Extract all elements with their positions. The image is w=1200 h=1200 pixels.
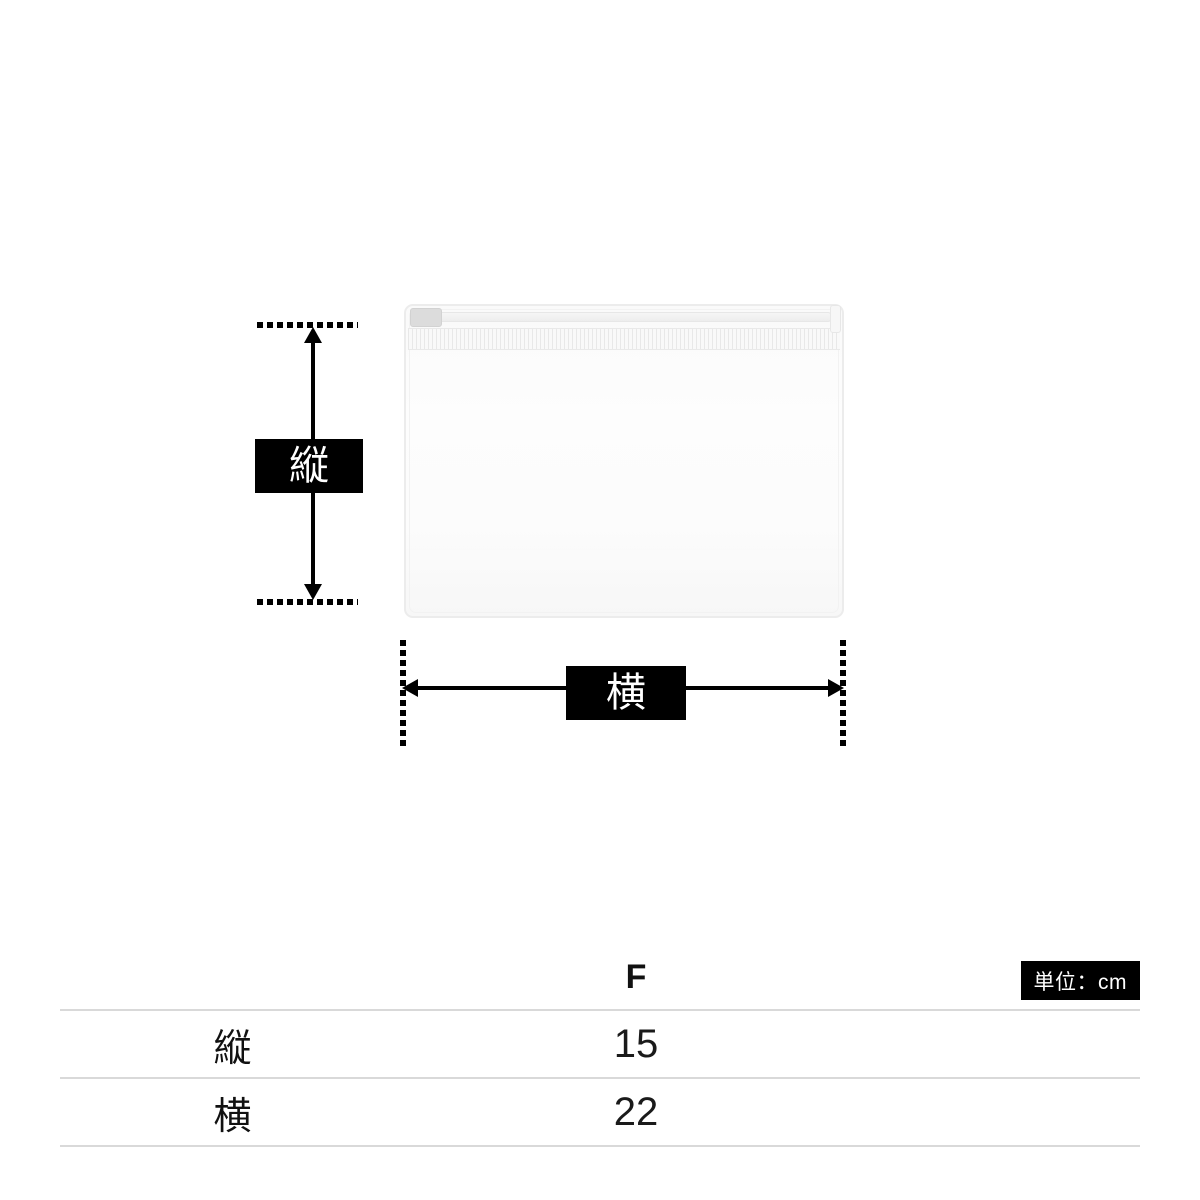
- table-row: 横 22: [60, 1077, 1140, 1147]
- vertical-arrowhead-up-icon: [304, 327, 322, 343]
- horizontal-arrowhead-right-icon: [828, 679, 844, 697]
- vertical-arrowhead-down-icon: [304, 584, 322, 600]
- table-row: 縦 15: [60, 1009, 1140, 1077]
- size-table: F 単位：cm 縦 15 横 22: [60, 948, 1140, 1147]
- row-label-width: 横: [60, 1085, 405, 1140]
- vertical-dimension-text: 縦: [289, 446, 329, 486]
- vertical-dimension-label: 縦: [255, 439, 363, 493]
- unit-badge: 単位：cm: [1021, 961, 1141, 1000]
- row-label-height: 縦: [60, 1017, 405, 1072]
- zipper-rail: [436, 312, 832, 322]
- zipper-slider-tab: [410, 308, 442, 327]
- size-table-header: F 単位：cm: [60, 948, 1140, 1009]
- horizontal-dimension-label: 横: [566, 666, 686, 720]
- size-column-header: F: [405, 958, 867, 1009]
- pouch-seam-line: [409, 309, 839, 613]
- zipper-end-stop: [830, 305, 841, 333]
- size-chart-page: 縦 横 F 単位：cm 縦 15 横 22: [0, 0, 1200, 1200]
- row-value-height: 15: [405, 1022, 867, 1067]
- zipper-teeth-band: [408, 328, 840, 350]
- row-value-width: 22: [405, 1090, 867, 1135]
- pouch-illustration: [404, 304, 844, 618]
- horizontal-arrowhead-left-icon: [402, 679, 418, 697]
- horizontal-dimension-text: 横: [606, 673, 646, 713]
